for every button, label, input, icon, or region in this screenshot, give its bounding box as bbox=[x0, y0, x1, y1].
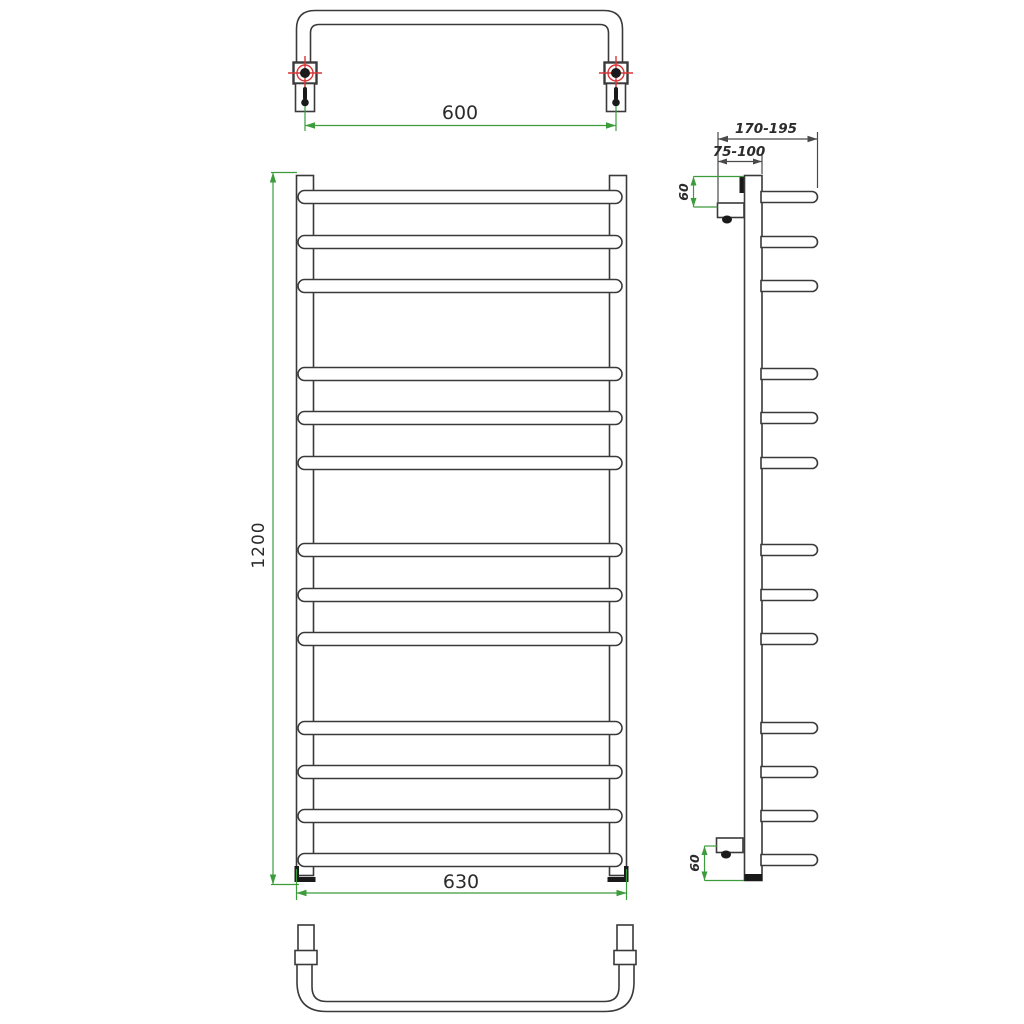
wall-mount-left bbox=[288, 56, 322, 131]
arrowhead bbox=[305, 122, 315, 128]
side-rung bbox=[761, 413, 818, 424]
dimension-600: 600 bbox=[305, 102, 616, 129]
arrowhead bbox=[718, 136, 728, 142]
left-foot bbox=[295, 877, 316, 882]
front-rung bbox=[298, 368, 622, 381]
side-rung bbox=[761, 545, 818, 556]
side-rung bbox=[761, 458, 818, 469]
front-rung bbox=[298, 280, 622, 293]
dim-label-170-195: 170-195 bbox=[735, 121, 797, 137]
arrowhead bbox=[270, 875, 276, 885]
arrowhead bbox=[297, 890, 307, 896]
right-pipe-stub bbox=[617, 925, 633, 951]
side-rung bbox=[761, 767, 818, 778]
front-rung bbox=[298, 854, 622, 867]
dimension-1200: 1200 bbox=[249, 173, 299, 885]
front-rung bbox=[298, 457, 622, 470]
keyhole-hole-icon bbox=[612, 99, 620, 107]
wall-bracket-top bbox=[718, 203, 745, 224]
front-rung bbox=[298, 544, 622, 557]
front-rung bbox=[298, 722, 622, 735]
side-rungs bbox=[761, 192, 818, 866]
dim-label-60-top: 60 bbox=[676, 183, 691, 201]
dimension-75-100: 75-100 bbox=[713, 144, 766, 174]
side-rung bbox=[761, 855, 818, 866]
top-rail-tube-inner bbox=[311, 25, 609, 65]
mount-hole bbox=[300, 68, 310, 78]
front-rung bbox=[298, 810, 622, 823]
front-rung bbox=[298, 633, 622, 646]
tube-bottom-cap bbox=[745, 874, 763, 881]
front-rung bbox=[298, 412, 622, 425]
side-view: 170-195 75-100 60 60 bbox=[676, 121, 818, 881]
dim-label-60-bottom: 60 bbox=[687, 854, 702, 872]
dim-label-600: 600 bbox=[442, 102, 478, 124]
side-rung bbox=[761, 634, 818, 645]
drawing-canvas: { "canvas": { "background": "#ffffff" },… bbox=[0, 0, 1024, 1024]
side-rung bbox=[761, 723, 818, 734]
arrowhead bbox=[808, 136, 818, 142]
bracket-screw-icon bbox=[722, 216, 732, 224]
wall-bracket-bottom bbox=[717, 838, 744, 859]
arrowhead bbox=[702, 872, 708, 881]
bracket-arm bbox=[717, 838, 744, 853]
right-pipe-collar bbox=[614, 951, 636, 965]
side-rung bbox=[761, 281, 818, 292]
arrowhead bbox=[691, 177, 697, 186]
right-foot bbox=[608, 877, 629, 882]
bracket-arm bbox=[718, 203, 745, 218]
bottom-view bbox=[295, 925, 636, 1012]
keyhole-hole-icon bbox=[301, 99, 309, 107]
left-pipe-collar bbox=[295, 951, 317, 965]
arrowhead bbox=[617, 890, 627, 896]
side-rung bbox=[761, 811, 818, 822]
side-rung bbox=[761, 590, 818, 601]
arrowhead bbox=[702, 846, 708, 855]
towel-rail-technical-drawing: 600 1200 63 bbox=[0, 0, 1024, 1024]
left-pipe-stub bbox=[298, 925, 314, 951]
bottom-rail-tube-inner bbox=[312, 964, 619, 1002]
side-rung bbox=[761, 369, 818, 380]
side-rung bbox=[761, 192, 818, 203]
front-rungs bbox=[298, 191, 622, 867]
front-rung bbox=[298, 589, 622, 602]
side-rung bbox=[761, 237, 818, 248]
arrowhead bbox=[606, 122, 616, 128]
bottom-rail-tube-outer bbox=[297, 964, 634, 1012]
dim-label-1200: 1200 bbox=[249, 521, 269, 568]
arrowhead bbox=[270, 173, 276, 183]
front-rung bbox=[298, 191, 622, 204]
bracket-screw-icon bbox=[721, 851, 731, 859]
dim-label-630: 630 bbox=[443, 871, 479, 893]
wall-mount-right bbox=[599, 56, 633, 131]
arrowhead bbox=[691, 198, 697, 207]
mount-hole bbox=[611, 68, 621, 78]
front-rung bbox=[298, 766, 622, 779]
front-rung bbox=[298, 236, 622, 249]
dim-label-75-100: 75-100 bbox=[713, 144, 766, 160]
top-view: 600 bbox=[288, 11, 633, 132]
top-rail-tube-outer bbox=[297, 11, 623, 65]
front-view: 1200 630 bbox=[249, 173, 629, 901]
dimension-630: 630 bbox=[297, 869, 627, 900]
side-collector-tube bbox=[745, 176, 763, 881]
